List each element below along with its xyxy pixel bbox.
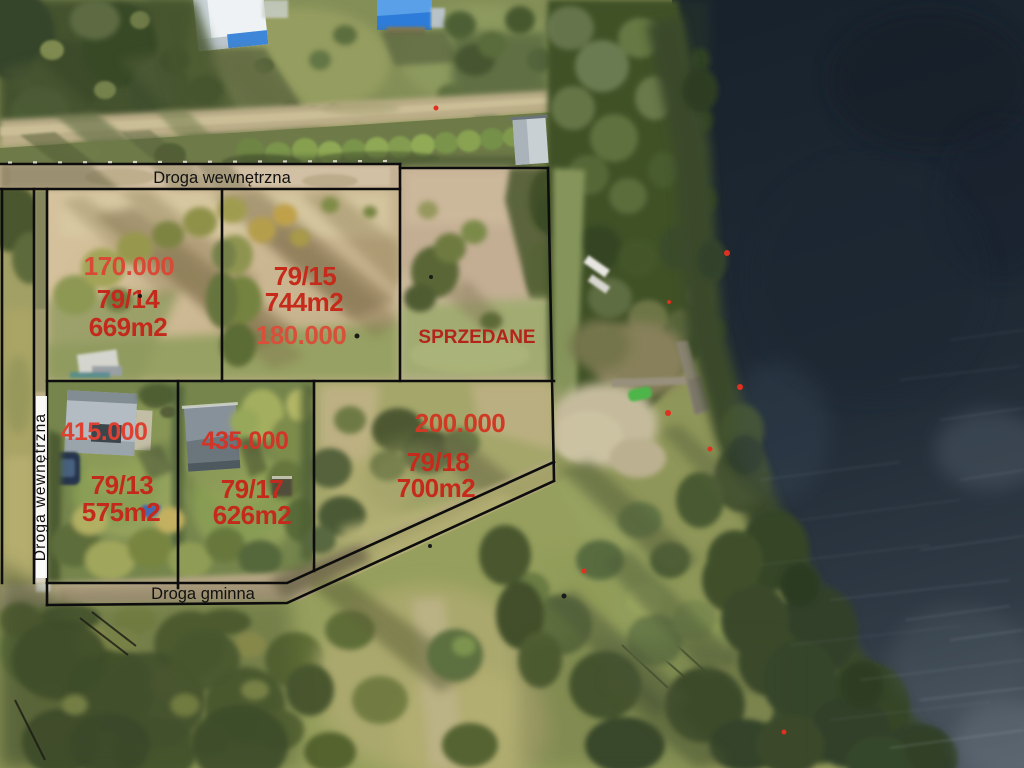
svg-text:Droga gminna: Droga gminna xyxy=(151,585,255,603)
svg-text:435.000: 435.000 xyxy=(202,427,289,455)
svg-text:744m2: 744m2 xyxy=(265,287,343,317)
svg-text:Droga wewnętrzna: Droga wewnętrzna xyxy=(32,413,49,561)
svg-text:180.000: 180.000 xyxy=(256,320,347,350)
svg-text:200.000: 200.000 xyxy=(415,408,506,438)
svg-text:79/14: 79/14 xyxy=(97,284,161,314)
svg-text:415.000: 415.000 xyxy=(61,418,148,446)
svg-text:669m2: 669m2 xyxy=(89,312,167,342)
svg-text:79/13: 79/13 xyxy=(91,470,154,500)
svg-text:626m2: 626m2 xyxy=(213,500,291,530)
svg-text:SPRZEDANE: SPRZEDANE xyxy=(418,327,535,348)
svg-text:575m2: 575m2 xyxy=(82,497,160,527)
svg-text:700m2: 700m2 xyxy=(397,473,475,503)
svg-text:170.000: 170.000 xyxy=(84,251,175,281)
svg-text:Droga wewnętrzna: Droga wewnętrzna xyxy=(153,169,291,187)
